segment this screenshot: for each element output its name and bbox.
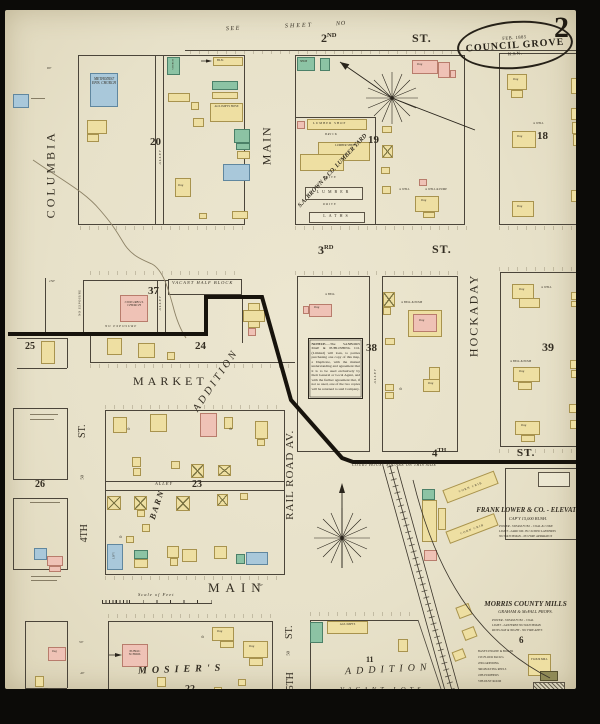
court-house-note: COURT HOUSE SQUARE ON THIS SIDE: [352, 463, 436, 467]
barn-building: [134, 496, 147, 510]
elevator-capacity: CAP'Y 15,000 BUSH.: [493, 517, 563, 522]
dwelling-label: Dwg: [314, 307, 319, 310]
lot-ticks: [108, 614, 273, 618]
frame-building: [455, 603, 472, 619]
frame-building: [573, 134, 576, 146]
block-37-line: [83, 280, 84, 333]
frame-building: [423, 212, 435, 218]
yard-line: [295, 117, 375, 118]
well-icon: ⊙: [399, 388, 402, 392]
special-building: [320, 58, 330, 71]
special-building: [310, 622, 323, 643]
frame-building: [571, 370, 576, 378]
dwelling-label: Dwg: [517, 136, 522, 139]
barn-building: [107, 496, 121, 510]
frame-building: [461, 626, 477, 641]
well-icon: ⊙: [541, 286, 543, 289]
dim-label: 40': [80, 672, 84, 676]
mill-floor-note: 2ND-GRINDING: [478, 662, 499, 665]
frame-building: [87, 120, 107, 134]
well-icon: ⊙: [325, 293, 327, 296]
barn-building: [176, 496, 190, 511]
dwelling-building: [512, 131, 536, 148]
lot-ticks: [295, 271, 460, 275]
dwelling-building: [513, 367, 540, 382]
corn-crib-building: CORN CRIB: [445, 513, 498, 544]
street-label-4th-st: ST.: [517, 448, 535, 460]
frame-building: [199, 213, 207, 219]
outline-building: [538, 472, 570, 487]
block-11-diagonal-line: [418, 620, 448, 689]
bell-label: ⊙ BELL: [325, 294, 335, 297]
dwelling-label: Dwg: [521, 425, 526, 428]
brick-building: [248, 328, 256, 336]
block-number-38: 38: [366, 343, 377, 355]
dwelling-building: [113, 417, 127, 433]
well-icon: ⊙: [425, 188, 427, 191]
block-27-line: [25, 621, 67, 622]
well-icon: ⊙: [399, 188, 401, 191]
brick-building: [438, 62, 450, 78]
mill-floor-note: 4TH-PURIFIERS: [478, 674, 499, 677]
street-label-4th-st-left: ST.: [78, 416, 89, 446]
street-label-hockaday: HOCKADAY: [468, 269, 481, 361]
frame-building: [570, 360, 576, 369]
frame-building: [511, 90, 523, 98]
frame-building: [137, 510, 145, 517]
shop-label: SHOP: [300, 61, 307, 64]
mill-floor-note: 5TH-DUST ROOM: [478, 680, 501, 683]
flour-mill-label: FLOUR MILL: [529, 659, 550, 662]
dwelling-label: Dwg: [517, 206, 522, 209]
dwelling-building: [515, 421, 540, 435]
block-24-line: [90, 336, 91, 362]
micro-text-line: [31, 580, 57, 581]
dwelling-label: Dwg: [428, 383, 433, 386]
implements-label: AG'L IMP'TS: [328, 624, 367, 627]
well-icon: ⊙: [533, 122, 535, 125]
mills-note: LIGHT - LANTERNS NO WATCHMAN: [492, 624, 541, 627]
alley-label: ALLEY: [159, 283, 163, 323]
scale-label: Scale of Feet: [138, 593, 175, 598]
dwelling-label: Dwg: [513, 79, 518, 82]
public-school-label: PUBLIC SCHOOL: [123, 650, 147, 656]
lot-ticks: [190, 50, 465, 54]
frame-building: [138, 343, 155, 358]
brick-building: [450, 70, 456, 78]
lot-ticks: [295, 226, 467, 230]
map-sheet-photo: METHODIST EPIS. CHURCH CHURCH BL'K AG'L …: [0, 0, 600, 724]
mill-floor-note: 3RD-BOLTING REELS: [478, 668, 506, 671]
frame-building: [243, 310, 265, 322]
frame-building: [385, 384, 394, 391]
frame-building: [214, 546, 227, 559]
brick-building: [424, 550, 437, 561]
block-number-39: 39: [542, 341, 554, 354]
lot-ticks: [80, 226, 245, 230]
frame-building: [571, 301, 576, 307]
block-number-22: 22: [185, 685, 195, 689]
micro-text-line: [30, 414, 58, 415]
see-sheet-label: SEE: [226, 26, 241, 33]
vacant-half-block-label: VACANT HALF BLOCK: [172, 281, 233, 286]
frame-building: [41, 341, 55, 364]
special-building: [422, 489, 435, 500]
well-icon: ⊙: [510, 360, 512, 363]
street-dim-50: 50: [81, 467, 86, 487]
frame-building: [157, 677, 166, 687]
barn-building: [217, 494, 228, 506]
corn-crib-label: CORN CRIB: [458, 481, 483, 494]
brick-building: [412, 60, 438, 74]
frame-building: [385, 338, 395, 345]
laths-label: LATHS: [311, 214, 363, 218]
block-number-24: 24: [195, 341, 206, 353]
brick-building: [309, 304, 332, 317]
frame-building: [521, 435, 535, 442]
brick-building: [200, 413, 217, 437]
mills-props: GRAHAM & McFALL PROPS.: [483, 610, 568, 615]
well-icon: ⊙: [127, 428, 130, 432]
frame-building: [570, 420, 576, 429]
special-building: [234, 129, 250, 143]
livery-label: LIV'Y: [114, 543, 117, 567]
lot-ticks: [499, 267, 576, 271]
block-25-line: [67, 338, 68, 368]
dim-label: 150': [49, 280, 55, 284]
barn-building: [382, 145, 393, 158]
frame-building: [35, 676, 44, 687]
block-number-26: 26: [35, 480, 45, 491]
engine-building: [540, 671, 558, 681]
lot-ticks: [499, 226, 576, 230]
micro-text-line: [31, 576, 61, 577]
brick-building: [413, 314, 437, 332]
sheet-number: 2: [554, 12, 569, 44]
frame-building: [519, 298, 540, 308]
frame-building: [238, 679, 246, 686]
addition-label: ADDITION: [345, 663, 432, 678]
block-number-6: 6: [519, 636, 524, 645]
frame-building: [212, 92, 238, 99]
street-label-4th-left: 4TH: [80, 516, 91, 550]
lot-ticks: [90, 271, 242, 275]
well-icon: ⊙: [119, 536, 122, 540]
special-building: [212, 81, 238, 90]
block-number-27: 27½: [39, 688, 55, 689]
dwelling-building: [512, 201, 534, 217]
frame-building: [452, 648, 467, 662]
frame-building: [398, 639, 408, 652]
stone-building: [223, 164, 250, 181]
elevator-note: POWER - STEAM FUEL - COAL & COKE: [499, 525, 553, 528]
stone-building: [13, 94, 29, 108]
frame-building: [191, 102, 199, 110]
special-building: [134, 550, 148, 559]
special-building: [236, 554, 245, 564]
brick-building: [297, 121, 305, 129]
street-label-3rd: 3RD: [318, 244, 334, 257]
lot-ticks: [90, 364, 290, 368]
street-label-4th: 4TH: [432, 448, 446, 460]
street-label-2nd-st: ST.: [412, 32, 432, 45]
dim-label: 150': [257, 584, 263, 588]
block-27-line: [25, 621, 26, 688]
no-exposure-label: NO EXPOSURE: [78, 278, 81, 328]
frame-building: [168, 93, 190, 102]
alley-line: [165, 280, 166, 333]
frame-building: [193, 118, 204, 127]
street-label-5th-st: ST.: [285, 617, 296, 647]
dim-label: 80': [47, 67, 51, 71]
well-icon: ⊙: [201, 636, 204, 640]
frame-building: [134, 559, 148, 568]
sanborn-notice-box: NOTICE.—The SANBORN MAP & PUBLISHING CO.…: [308, 338, 363, 399]
dwelling-building: [507, 74, 527, 90]
street-dim-50: 50: [287, 645, 292, 661]
frame-building: [133, 468, 141, 476]
street-label-3rd-st: ST.: [432, 243, 452, 256]
dim-label: 50': [79, 641, 83, 645]
frame-building: [214, 687, 222, 689]
frame-building: [220, 641, 234, 648]
frame-building: [571, 190, 576, 202]
frame-building: [170, 558, 178, 566]
frame-building: [240, 493, 248, 500]
micro-text-line: [31, 98, 45, 99]
dwelling-label: Dwg: [421, 200, 426, 203]
title-state: KAN.: [508, 50, 523, 56]
dwelling-label: Dwg: [417, 64, 422, 67]
stone-building: [246, 552, 268, 565]
frame-building: [518, 382, 532, 390]
blacksmith-label: BL'K: [217, 59, 224, 62]
block-number-25: 25: [25, 342, 35, 353]
frame-building: [171, 461, 180, 469]
brick-drive-label: BRICK: [325, 133, 338, 136]
mills-note: POWER - STEAM FUEL - COAL: [492, 619, 534, 622]
mills-title: MORRIS COUNTY MILLS: [473, 601, 576, 609]
elevator-note: LIGHT - LARD OIL IN CLOSED LANTERNS: [499, 530, 556, 533]
corn-crib-building: CORN CRIB: [442, 471, 498, 504]
brick-building: [303, 306, 309, 314]
elevator-building: [422, 500, 437, 542]
see-sheet-label: SHEET: [285, 23, 313, 30]
well-label: ⊙ WELL: [541, 287, 552, 290]
frame-building: [385, 392, 394, 399]
frame-building: [571, 108, 576, 120]
street-label-columbia: COLUMBIA: [45, 126, 58, 222]
map-paper: METHODIST EPIS. CHURCH CHURCH BL'K AG'L …: [5, 10, 576, 689]
dwelling-label: Dwg: [217, 631, 222, 634]
block-number-23: 23: [192, 480, 202, 491]
brick-building: [47, 556, 63, 566]
mills-note: RUNS DAY & NIGHT - NO FIRE APP'S: [492, 629, 542, 632]
frame-building: [255, 421, 268, 439]
frame-building: [571, 292, 576, 300]
micro-text-line: [30, 502, 60, 503]
block-number-11: 11: [366, 656, 374, 664]
frame-building: [132, 457, 141, 467]
hatched-structure: [533, 682, 565, 689]
brick-building: [49, 566, 61, 572]
see-sheet-label: NO: [336, 21, 347, 28]
notice-body: —The SANBORN MAP & PUBLISHING CO. (Limit…: [312, 342, 361, 391]
block-number-18: 18: [537, 131, 548, 143]
barn-building: [191, 464, 204, 478]
street-label-5th: 5TH: [286, 664, 297, 689]
street-label-main-vertical: MAIN: [261, 115, 274, 175]
dwelling-building: [48, 647, 66, 661]
block-27-line: [67, 621, 68, 688]
dwelling-label: Dwg: [52, 651, 57, 654]
dwelling-label: Dwg: [519, 371, 524, 374]
corn-crib-label: CORN CRIB: [460, 522, 485, 535]
bell-pump-label: ⊙ BELL & PUMP: [401, 302, 422, 305]
barn-building: [218, 465, 231, 476]
frame-building: [381, 167, 390, 174]
dwelling-label: Dwg: [178, 185, 183, 188]
elevator-note: NO WATCHMAN - NO FIRE APPARATUS: [499, 535, 552, 538]
lot-ticks: [310, 612, 418, 616]
frame-building: [382, 126, 392, 133]
dwelling-label: Dwg: [519, 289, 524, 292]
notice-title: NOTICE.: [312, 342, 327, 346]
frame-building: [438, 508, 446, 530]
frame-building: [142, 524, 150, 532]
block-number-20: 20: [150, 137, 161, 149]
dwelling-building: [212, 627, 234, 641]
dwelling-building: [243, 641, 268, 658]
mill-floor-note: 1ST-FLOUR PACK'G: [478, 656, 504, 659]
alley-label: ALLEY: [374, 356, 378, 396]
frame-building: [87, 134, 99, 142]
micro-text-line: [30, 419, 54, 420]
frame-building: [237, 151, 250, 159]
lot-line: [45, 278, 46, 332]
implements-house-label: AG'L IMP'TS HO'SE: [211, 106, 242, 109]
street-label-railroad-av: RAIL ROAD AV.: [285, 415, 297, 535]
well-pump-label: ⊙ WELL & PUMP: [425, 189, 447, 192]
frame-building: [383, 307, 391, 315]
block-25-line: [17, 338, 67, 339]
frame-building: [569, 404, 576, 413]
frame-building: [382, 186, 391, 194]
frame-building: [167, 546, 179, 558]
frame-building: [232, 211, 248, 219]
well-label: ⊙ WELL: [533, 123, 544, 126]
well-icon: ⊙: [401, 301, 403, 304]
special-building: [236, 143, 250, 150]
frame-building: [249, 658, 263, 666]
dwelling-building: [150, 414, 167, 432]
block-37-line: [83, 280, 168, 281]
dwelling-building: [415, 196, 439, 212]
mill-floor-note: BASE'T-ENGINE & BOILER: [478, 650, 513, 653]
well-label: ⊙ WELL: [399, 189, 410, 192]
lot-ticks: [499, 449, 576, 453]
church-label: CHURCH: [173, 51, 176, 77]
block-number-37: 37: [148, 286, 159, 298]
frame-building: [257, 439, 265, 446]
lumber-shop-label: LUMBER SHOP: [313, 122, 346, 125]
dwelling-label: Dwg: [419, 320, 424, 323]
cong-church-label: CONG'REG'L CHURCH: [121, 301, 147, 308]
compass-rose-icon: [314, 483, 370, 568]
brick-building: [419, 179, 427, 186]
methodist-church-label: METHODIST EPIS. CHURCH: [91, 78, 117, 86]
frame-building: [572, 122, 576, 134]
frame-building: [107, 338, 122, 355]
block-number-19: 19: [368, 135, 379, 147]
block-25-line: [17, 368, 67, 369]
well-icon: ⊙: [229, 428, 232, 432]
street-label-market: MARKET: [133, 375, 208, 388]
alley-line: [163, 55, 164, 225]
frame-building: [126, 536, 134, 543]
scale-bar-fine-ticks: [102, 600, 130, 604]
frame-building: [571, 78, 576, 94]
block-24-line: [90, 362, 295, 363]
bell-pump-label: ⊙ BELL & PUMP: [510, 361, 531, 364]
dwelling-building: [182, 549, 197, 562]
drive-label: DRIVE: [323, 203, 337, 206]
no-exposure-label: NO EXPOSURE: [105, 325, 137, 328]
stone-building: [34, 548, 47, 560]
frame-building: [167, 352, 175, 360]
dwelling-label: Dwg: [249, 646, 254, 649]
barn-building: [383, 292, 395, 307]
elevator-title: FRANK LOWER & CO. - ELEVATOR: [473, 507, 576, 514]
street-label-2nd: 2ND: [321, 32, 337, 45]
vacant-lots-label: VACANT LOTS: [340, 687, 424, 689]
